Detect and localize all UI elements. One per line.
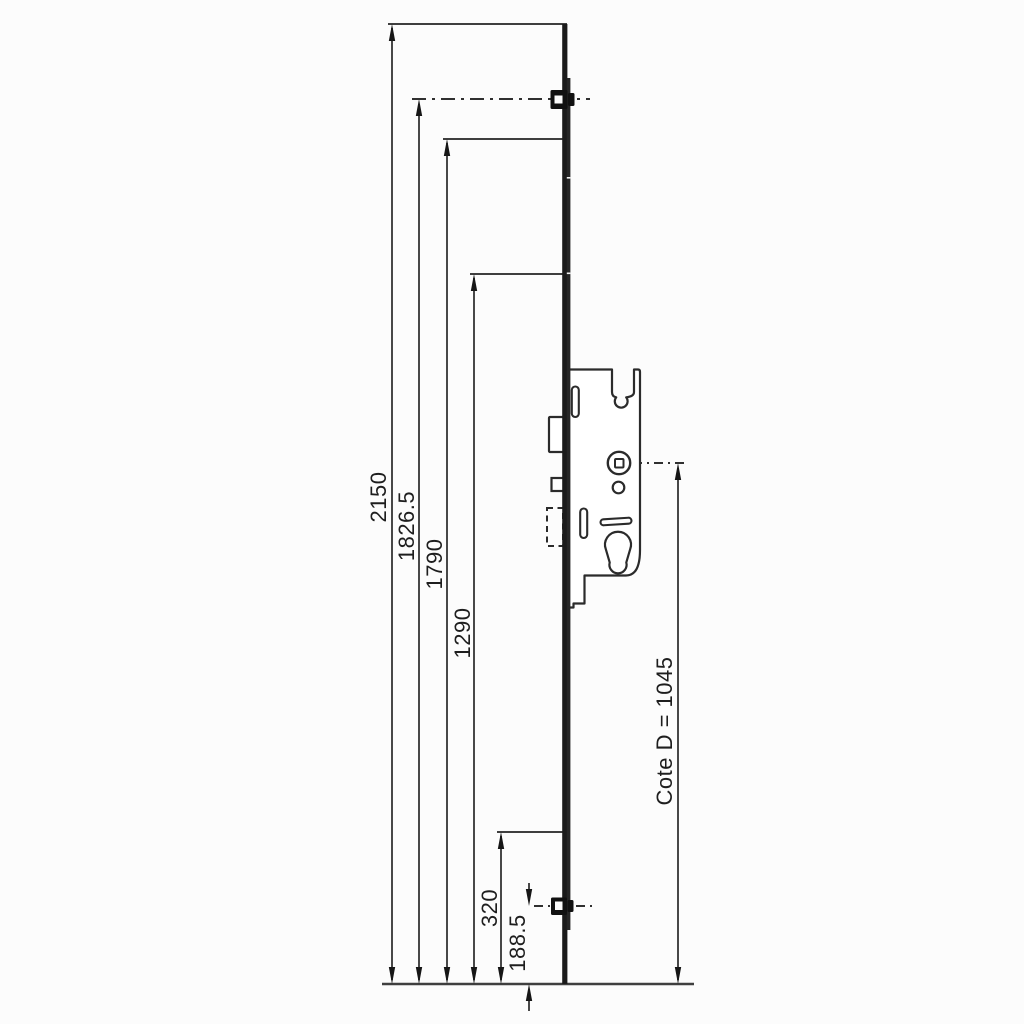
fixing-hole (613, 482, 625, 494)
dimension-1790 (443, 139, 564, 984)
label-lower-point: 320 (477, 889, 503, 927)
rail-extension-strip (567, 78, 571, 930)
faceplate-rail (562, 24, 570, 984)
label-bottom-roller-centre: 188.5 (505, 914, 531, 972)
spindle-follower-hub (608, 452, 630, 474)
label-top-roller-centre: 1826.5 (394, 491, 420, 561)
euro-cylinder-cutout (605, 532, 631, 574)
label-rail-upper-point: 1790 (422, 539, 448, 590)
strike-outline-dashed (547, 508, 563, 546)
lever-slot (600, 518, 631, 526)
fixing-slot-upper (572, 387, 579, 418)
label-handle-centre-height: Cote D = 1045 (652, 657, 678, 806)
top-roller-cam (551, 90, 575, 109)
gearbox-case (547, 370, 640, 608)
fixing-slot-lower (580, 509, 587, 539)
label-overall-height: 2150 (366, 472, 392, 523)
dimension-1290 (470, 274, 564, 984)
dimension-drawing: 2150 1826.5 1790 1290 320 188.5 Cote D =… (0, 0, 1024, 1024)
label-rail-mid-point: 1290 (450, 608, 476, 659)
drawing-linework (0, 0, 1024, 1024)
